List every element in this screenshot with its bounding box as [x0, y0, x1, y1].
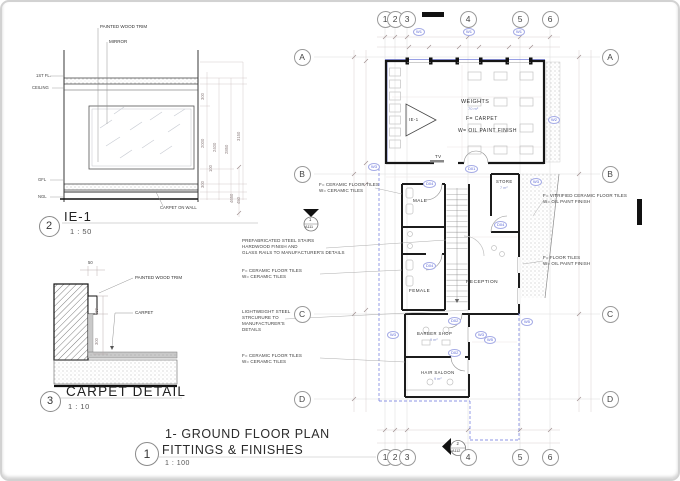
edge-bar [637, 199, 642, 225]
note-left2-wall: W= CERAMIC TILES [242, 274, 286, 279]
view-scale-carpet: 1 : 10 [68, 402, 90, 411]
section2-number: 2 [457, 441, 459, 446]
plan-title-line2: FITTINGS & FINISHES [162, 443, 303, 457]
floor-plan-linework [237, 12, 642, 456]
view-title-ie1: IE-1 [64, 209, 92, 224]
label-painted-wood-trim-2: PAINTED WOOD TRIM [135, 275, 182, 280]
room-store: STORE [496, 179, 513, 184]
grid-bubble-col6-bottom: 6 [542, 449, 559, 466]
tag-w1-a: W1 [413, 28, 425, 36]
cad-linework [2, 2, 680, 481]
dim-300-top: 300 [200, 93, 205, 100]
view-title-carpet: CARPET DETAIL [66, 384, 186, 399]
dim-2850: 2850 [224, 145, 229, 154]
tag-w3-c: W3 [387, 331, 399, 339]
label-tv: TV [435, 154, 442, 159]
tag-w5-a: W5 [521, 318, 533, 326]
tag-w2: W2 [548, 116, 560, 124]
room-store-area: 7 m² [500, 186, 508, 190]
tag-w3-b: W3 [530, 178, 542, 186]
note-left3-floor: F= CERAMIC FLOOR TILES [242, 353, 302, 358]
note-steel-4: DETAILS [242, 327, 261, 332]
tag-w3-a: W3 [368, 163, 380, 171]
dim-2000: 2000 [200, 139, 205, 148]
room-female: FEMALE [409, 288, 430, 293]
label-mirror: MIRROR [109, 39, 127, 44]
label-carpet-on-wall: CARPET ON WALL [160, 205, 197, 210]
carpet-detail-linework [42, 266, 182, 398]
room-weights: WEIGHTS [461, 99, 489, 105]
room-reception: RECEPTION [466, 280, 498, 285]
section1-sheet: A111 [305, 225, 313, 229]
note-steel-2: STRCURURE TO [242, 315, 279, 320]
view-bubble-3: 3 [40, 391, 61, 412]
grid-bubble-col6-top: 6 [542, 11, 559, 28]
tag-w1-c: W1 [513, 28, 525, 36]
label-ie1-marker: IE-1 [409, 117, 418, 122]
dim-2400: 2400 [212, 143, 217, 152]
room-hair-saloon: HAIR SALOON [421, 370, 455, 375]
tag-w1-b: W1 [463, 28, 475, 36]
view-bubble-2: 2 [39, 216, 60, 237]
grid-bubble-col3-top: 3 [399, 11, 416, 28]
label-gfl: GFL [38, 177, 46, 182]
note-steel-1: LIGHTWEIGHT STEEL [242, 309, 290, 314]
note-b-wall: W= CERAMIC TILES [319, 188, 363, 193]
note-left2-floor: F= CERAMIC FLOOR TILES [242, 268, 302, 273]
section1-number: 1 [309, 217, 311, 222]
label-painted-wood-trim: PAINTED WOOD TRIM [100, 24, 147, 29]
label-ceiling: CEILING [32, 85, 49, 90]
grid-bubble-rowD-left: D [294, 391, 311, 408]
dim-100-carpet: 100 [94, 308, 99, 315]
grid-bubble-rowB-left: B [294, 166, 311, 183]
grid-bubble-col5-top: 5 [512, 11, 529, 28]
tag-w5-b: W5 [484, 336, 496, 344]
grid-bubble-col4-top: 4 [460, 11, 477, 28]
note-right2-floor: F= FLOOR TILES [543, 255, 580, 260]
room-weights-area: 70 m² [468, 106, 478, 111]
dim-300-bottom: 300 [200, 181, 205, 188]
note-right2-wall: W= OIL PAINT FINISH [543, 261, 590, 266]
label-1st-fl: 1ST FL. [36, 73, 51, 78]
north-bar [422, 12, 444, 17]
grid-bubble-rowC-left: C [294, 306, 311, 323]
room-weights-wall-finish: W= OIL PAINT FINISH [458, 128, 517, 134]
section2-sheet: A112 [452, 449, 460, 453]
room-hair-area: 9 m² [434, 377, 442, 381]
view-scale-ie1: 1 : 50 [70, 227, 92, 236]
label-carpet: CARPET [135, 310, 153, 315]
room-male: MALE [413, 198, 427, 203]
grid-bubble-rowB-right: B [602, 166, 619, 183]
note-stairs-1: PREFABRICATED STEEL STAIRS [242, 238, 314, 243]
dim-4650: 4650 [229, 194, 234, 203]
plan-title-line1: 1- GROUND FLOOR PLAN [165, 427, 330, 441]
drawing-sheet: PAINTED WOOD TRIM MIRROR 1ST FL. CEILING… [0, 0, 680, 481]
note-stairs-3: GLASS RAILS TO MANUFACTURER'S DETAILS [242, 250, 345, 255]
room-barber-shop: BARBER SHOP [417, 331, 452, 336]
room-barber-area: 9 m² [430, 338, 438, 342]
note-left3-wall: W= CERAMIC TILES [242, 359, 286, 364]
grid-bubble-rowC-right: C [602, 306, 619, 323]
note-right1-wall: W= OIL PAINT FINISH [543, 199, 590, 204]
tv-symbol [430, 160, 444, 163]
grid-bubble-rowA-left: A [294, 49, 311, 66]
grid-bubble-col3-bottom: 3 [399, 449, 416, 466]
room-weights-floor-finish: F= CARPET [466, 116, 498, 122]
view-bubble-1: 1 [135, 442, 159, 466]
grid-bubble-col5-bottom: 5 [512, 449, 529, 466]
note-right1-floor: F= VITRIFIED CERAMIC FLOOR TILES [543, 193, 627, 198]
grid-bubble-rowD-right: D [602, 391, 619, 408]
note-stairs-2: HARDWOOD FINISH AND [242, 244, 298, 249]
dim-300-carpet: 300 [94, 338, 99, 345]
dim-100: 100 [208, 165, 213, 172]
dim-3150: 3150 [236, 132, 241, 141]
section-arrow-bottom [442, 438, 451, 455]
dim-50: 50 [88, 260, 93, 265]
grid-bubble-rowA-right: A [602, 49, 619, 66]
note-steel-3: MANUFACTURER'S [242, 321, 285, 326]
note-b-floor: F= CERAMIC FLOOR TILES [319, 182, 379, 187]
label-ngl: NGL [38, 194, 47, 199]
ie1-elevation-linework [50, 28, 258, 223]
grid-bubble-col4-bottom: 4 [460, 449, 477, 466]
plan-title-scale: 1 : 100 [165, 460, 190, 467]
dim-450: 450 [236, 197, 241, 204]
